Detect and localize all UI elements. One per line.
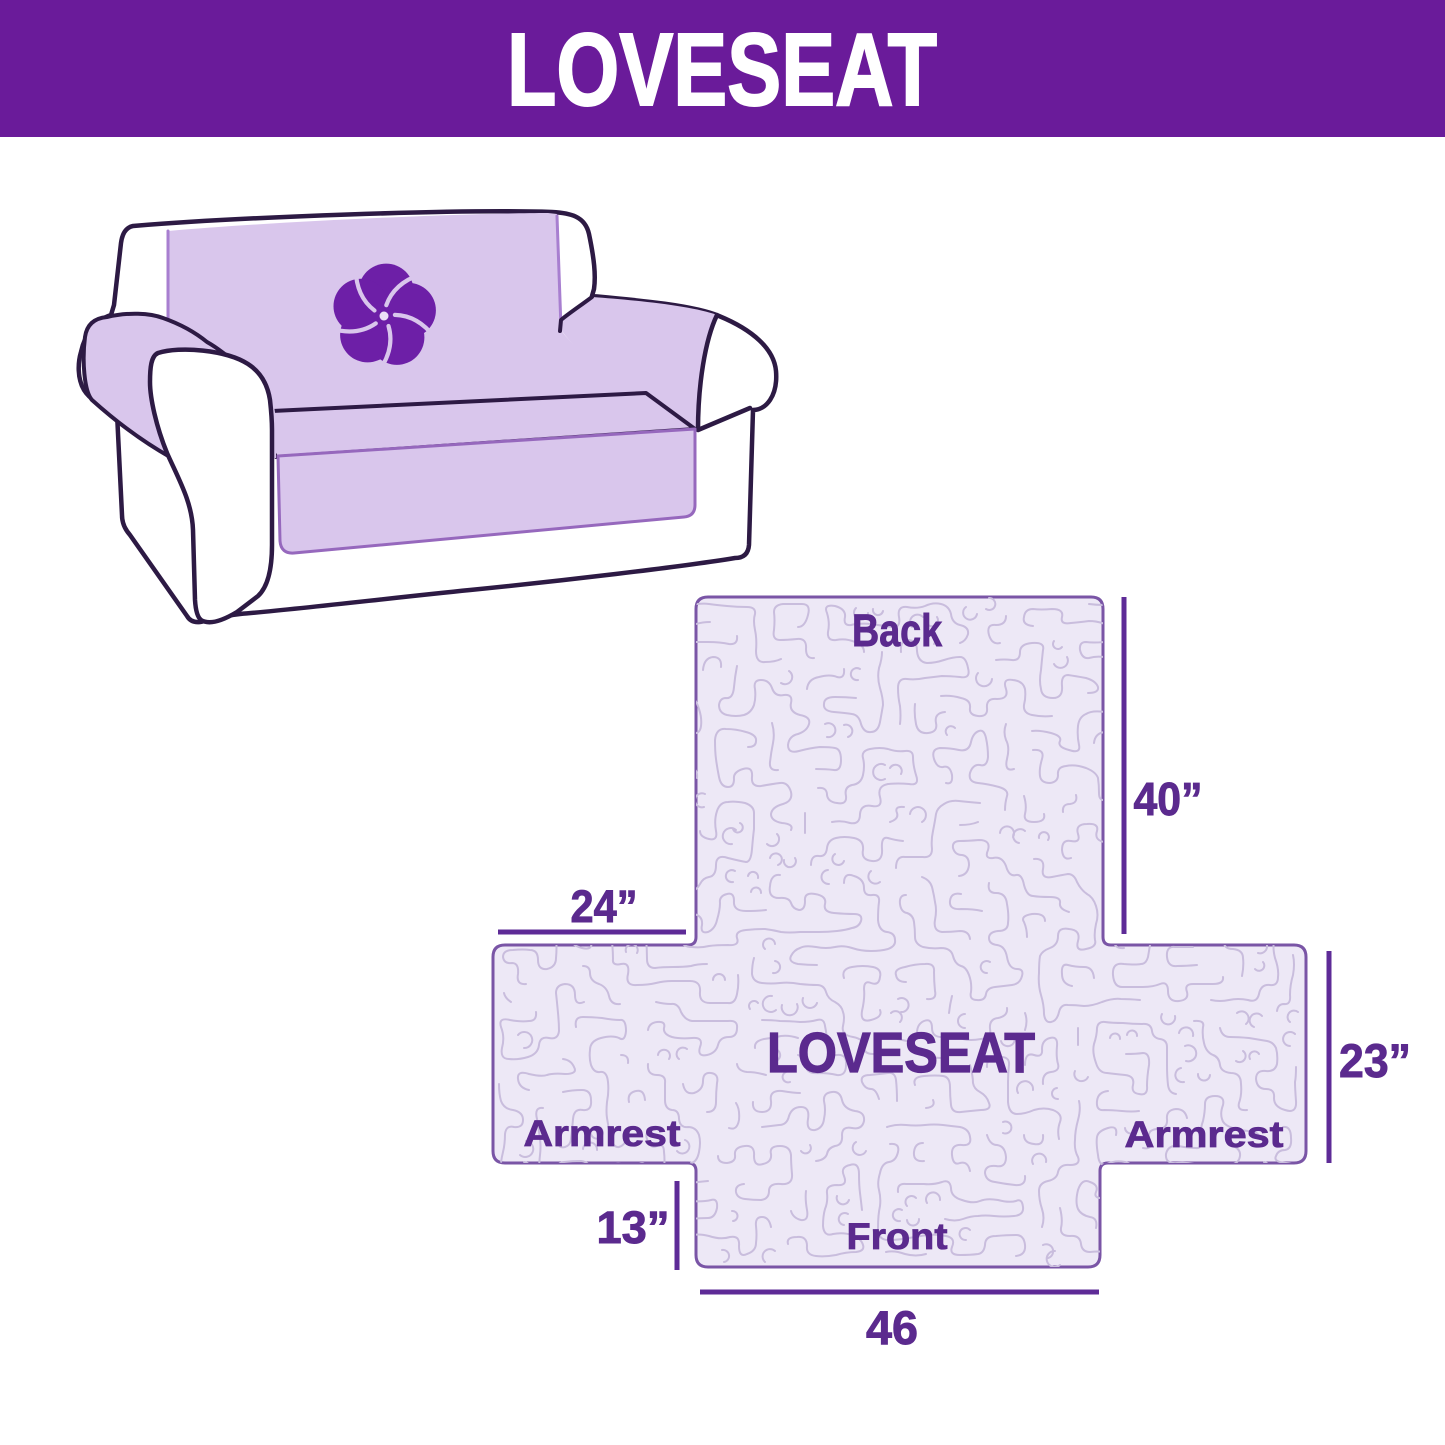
svg-text:13”: 13” bbox=[597, 1202, 670, 1253]
svg-text:24”: 24” bbox=[571, 881, 638, 932]
svg-text:40”: 40” bbox=[1134, 773, 1203, 825]
svg-text:Armrest: Armrest bbox=[524, 1113, 681, 1154]
svg-text:Front: Front bbox=[847, 1216, 948, 1257]
svg-text:LOVESEAT: LOVESEAT bbox=[507, 12, 937, 127]
svg-text:LOVESEAT: LOVESEAT bbox=[767, 1021, 1035, 1085]
svg-text:23”: 23” bbox=[1339, 1034, 1411, 1087]
svg-text:46: 46 bbox=[866, 1301, 918, 1354]
svg-text:Back: Back bbox=[852, 605, 943, 656]
svg-text:Armrest: Armrest bbox=[1125, 1114, 1284, 1155]
